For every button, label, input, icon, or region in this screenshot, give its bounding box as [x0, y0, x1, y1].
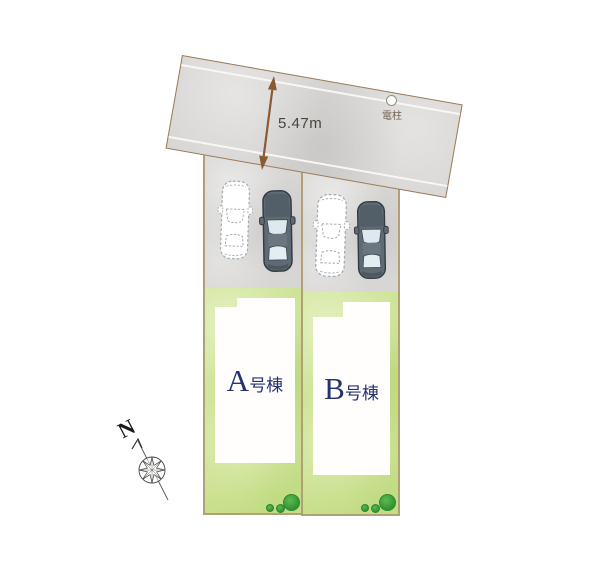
compass-north-label: N — [114, 414, 140, 444]
site-plan-canvas: A号棟 B号棟 — [0, 0, 600, 574]
shrub-icon — [266, 504, 274, 512]
building-b-letter: B — [324, 371, 345, 406]
car-top-view-dashed-icon — [216, 176, 255, 263]
lot-a-bottom-boundary — [203, 513, 303, 515]
building-a-footprint: A号棟 — [215, 298, 295, 463]
lot-b-right-boundary — [398, 185, 400, 515]
road-width-label: 5.47m — [278, 115, 322, 132]
lot-b-bottom-boundary — [301, 514, 400, 516]
shrub-icon — [379, 494, 396, 511]
building-a-label: A号棟 — [227, 363, 283, 399]
road-edge-line — [181, 64, 460, 115]
building-b-label: B号棟 — [324, 371, 379, 407]
building-b-suffix: 号棟 — [345, 384, 379, 403]
car-top-view-solid-icon — [352, 200, 390, 281]
utility-pole-label: 電柱 — [374, 107, 410, 122]
shrub-icon — [283, 494, 300, 511]
building-b-footprint: B号棟 — [313, 302, 390, 475]
lot-a-left-boundary — [203, 150, 205, 515]
shrub-icon — [361, 504, 369, 512]
car-top-view-solid-icon — [257, 189, 297, 274]
utility-pole-icon — [386, 95, 397, 106]
compass-rose-icon: N — [112, 408, 174, 504]
building-a-letter: A — [227, 363, 249, 398]
building-a-suffix: 号棟 — [249, 376, 283, 395]
lot-ab-shared-boundary — [301, 165, 303, 515]
car-top-view-dashed-icon — [310, 190, 351, 280]
